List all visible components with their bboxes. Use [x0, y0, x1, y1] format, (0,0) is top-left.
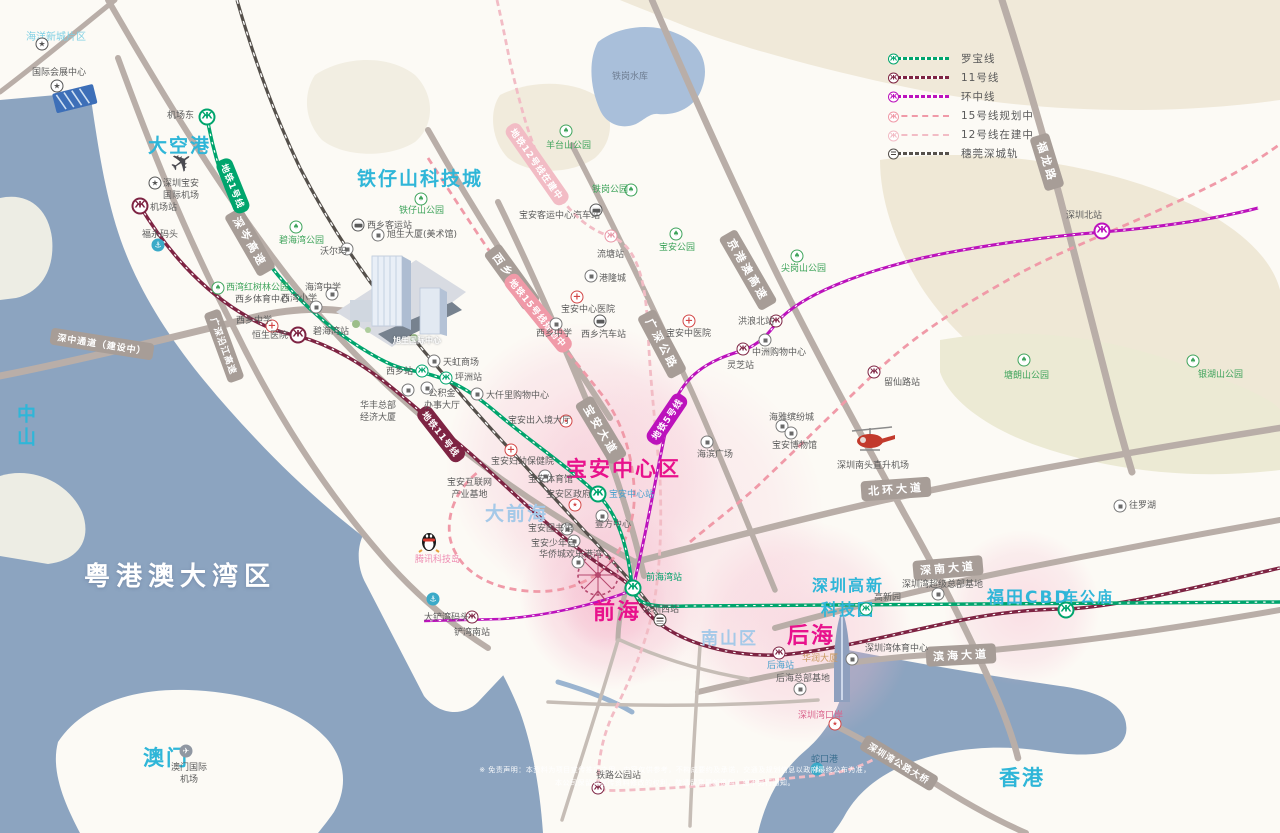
park-bihaiwan-icon: ♠ — [290, 221, 303, 234]
map-label: 旭生国际中心 — [393, 336, 441, 346]
map-label: 宝安中心站 — [609, 490, 654, 502]
map-label: 碧海湾站 — [313, 327, 349, 339]
station-shenzhenbei-icon: Ж — [1094, 223, 1111, 240]
region-label: 南山区 — [701, 624, 758, 649]
map-label: 宝安少年宫 — [531, 539, 576, 551]
legend-item: Ж11号线 — [891, 72, 1034, 83]
map-label: 银湖山公园 — [1198, 370, 1243, 382]
map-label: 羊台山公园 — [546, 141, 591, 153]
map-label: 留仙路站 — [884, 378, 920, 390]
poi-ganglongcheng-icon — [585, 270, 598, 283]
poi-wangluohu-icon — [1114, 500, 1127, 513]
map-label: 碧海湾公园 — [279, 236, 324, 248]
map-label: 深圳湾超级总部基地 — [902, 580, 983, 592]
map-label: 往罗湖 — [1129, 501, 1156, 513]
park-baoan-icon: ♠ — [670, 228, 683, 241]
region-label: 大前海 — [485, 499, 548, 526]
map-label: 塘朗山公园 — [1004, 371, 1049, 383]
map-label: 西湾小学 — [281, 294, 317, 306]
poi-huizhanzhongxin-icon: ★ — [51, 80, 64, 93]
region-label: 铁仔山科技城 — [357, 164, 483, 191]
poi-zhongzhou-icon — [759, 334, 772, 347]
station-jichangdong-icon: Ж — [199, 109, 216, 126]
legend-item-label: 12号线在建中 — [961, 127, 1034, 142]
map-label: 大仟里购物中心 — [486, 391, 549, 403]
map-label: 西乡汽车站 — [581, 330, 626, 342]
map-label: 西湾红树林公园 — [226, 283, 289, 295]
legend-item: Ж15号线规划中 — [891, 110, 1034, 121]
map-label: 铁岗水库 — [612, 72, 648, 84]
disclaimer: ※ 免责声明：本资料为项目宣传推广之用，内容仅供参考，不构成要约及承诺，交通及规… — [430, 764, 920, 789]
metro-line-label: 地铁5号线 — [644, 391, 690, 448]
park-xiwanhongshulin-icon: ♠ — [212, 282, 225, 295]
map-label: 公积金 办事大厅 — [424, 389, 460, 412]
map-label: 坪洲站 — [455, 373, 482, 385]
legend-line-sample: Ж — [891, 57, 949, 60]
map-label: 海滨广场 — [697, 450, 733, 462]
map-label: 宝安公园 — [659, 243, 695, 255]
bus-xixiangkeyun-icon — [352, 219, 365, 232]
shenzhen-baoan-location-map: ЖЖЖЖЖЖЖЖЖЖЖЖЖЖЖЖЖ✈♠♠♠♠♠♠♠♠♠★★★++++⚓⚓⚓✈★★… — [0, 0, 1280, 833]
park-yinhushan-icon: ♠ — [1187, 355, 1200, 368]
metro-icon: Ж — [888, 72, 899, 83]
legend-item: Ж环中线 — [891, 91, 1034, 102]
map-label: 铁仔山公园 — [399, 206, 444, 218]
legend-line-sample: Ж — [891, 95, 949, 98]
road-label: 福龙路 — [1029, 132, 1064, 191]
map-label: 华丰总部 经济大厦 — [360, 401, 396, 424]
station-gaoxinyuan-icon: Ж — [860, 603, 873, 616]
map-label: 宝安客运中心汽车站 — [519, 211, 600, 223]
station-liutang-icon: Ж — [605, 230, 618, 243]
map-label: 恒生医院 — [252, 331, 288, 343]
station-baoanzhongxin-icon: Ж — [590, 486, 607, 503]
map-label: 澳门国际 机场 — [171, 763, 207, 786]
legend-line-sample: Ж — [891, 76, 949, 79]
road-label: 北环大道 — [860, 477, 931, 502]
legend-line-sample: Ж — [891, 115, 949, 117]
macau-airport-icon: ✈ — [180, 745, 193, 758]
map-label: 机场站 — [150, 203, 177, 215]
road-label: 深中通道（建设中） — [49, 327, 154, 360]
hospital-baoanzhongxin-icon: + — [571, 291, 584, 304]
map-label: 腾讯科技岛 — [415, 555, 460, 567]
hospital-baoanzhongyi-icon: + — [683, 315, 696, 328]
map-label: 国际会展中心 — [32, 68, 86, 80]
map-label: 华润大厦 — [802, 654, 838, 666]
region-label: 中山 — [12, 404, 39, 450]
map-label: 宝安妇幼保健院 — [491, 457, 554, 469]
map-label: 深圳湾体育中心 — [865, 644, 928, 656]
map-label: 铲湾南站 — [454, 628, 490, 640]
disclaimer-line1: ※ 免责声明：本资料为项目宣传推广之用，内容仅供参考，不构成要约及承诺，交通及规… — [430, 764, 920, 777]
map-label: 流塘站 — [597, 250, 624, 262]
metro-icon: Ж — [888, 111, 899, 122]
rail-icon — [888, 148, 899, 159]
map-label: 机场东 — [167, 111, 194, 123]
poi-huarun-icon — [846, 653, 859, 666]
poi-bowuguan-icon — [785, 427, 798, 440]
map-label: 沃尔玛 — [320, 247, 347, 259]
map-label: 港隆城 — [599, 274, 626, 286]
poi-tianhong-icon — [428, 355, 441, 368]
map-label: 深圳宝安 国际机场 — [163, 179, 199, 202]
region-label: 前海 — [593, 594, 641, 626]
port-dachanwan-icon: ⚓ — [427, 593, 440, 606]
map-overlay: ЖЖЖЖЖЖЖЖЖЖЖЖЖЖЖЖЖ✈♠♠♠♠♠♠♠♠♠★★★++++⚓⚓⚓✈★★… — [0, 0, 1280, 833]
region-label: 宝安中心区 — [566, 453, 681, 483]
metro-legend: Ж罗宝线Ж11号线Ж环中线Ж15号线规划中Ж12号线在建中穗莞深城轨 — [891, 53, 1034, 167]
park-tiezishan-icon: ♠ — [415, 193, 428, 206]
road-label: 深岑高速 — [224, 207, 276, 278]
metro-icon: Ж — [888, 130, 899, 141]
disclaimer-line2: 本公司保留对宣传资料修改的权利，敬请留意最新资料，恕不另行通知。 — [430, 777, 920, 790]
metro-line-label: 地铁11号线 — [414, 403, 467, 464]
legend-item-label: 罗宝线 — [961, 51, 996, 66]
map-label: 前海湾站 — [646, 573, 682, 585]
map-label: 宝安中医院 — [666, 329, 711, 341]
map-label: 尖岗山公园 — [781, 264, 826, 276]
station-houhai-icon: Ж — [773, 647, 786, 660]
map-label: 深圳西站 — [643, 605, 679, 617]
map-label: 深圳北站 — [1066, 211, 1102, 223]
park-tanglangshan-icon: ♠ — [1018, 354, 1031, 367]
poi-airport-icon: ★ — [149, 177, 162, 190]
map-label: 高新园 — [874, 593, 901, 605]
map-label: 灵芝站 — [727, 361, 754, 373]
map-label: 海湾中学 — [305, 283, 341, 295]
map-label: 宝安图书馆 — [528, 524, 573, 536]
map-label: 福永码头 — [142, 230, 178, 242]
map-label: 西乡中学 — [536, 329, 572, 341]
station-pingzhou-icon: Ж — [440, 372, 453, 385]
road-label: 滨海大道 — [926, 643, 997, 667]
park-jiangangshan-icon: ♠ — [791, 250, 804, 263]
region-label: 香港 — [999, 762, 1045, 792]
station-chegongmiao-icon: Ж — [1058, 602, 1075, 619]
map-label: 壹方中心 — [595, 520, 631, 532]
poi-haibinguangchang-icon — [701, 436, 714, 449]
legend-item-label: 穗莞深城轨 — [961, 146, 1019, 161]
legend-item-label: 11号线 — [961, 70, 999, 85]
map-label: 西乡中学 — [236, 316, 272, 328]
map-label: 海雅缤纷城 — [769, 413, 814, 425]
map-label: 后海站 — [767, 661, 794, 673]
station-jichang-icon: Ж — [132, 198, 149, 215]
legend-item: Ж12号线在建中 — [891, 129, 1034, 140]
map-label: 宝安体育馆 — [528, 475, 573, 487]
map-label: 宝安出入境大厅 — [508, 416, 571, 428]
station-bihaiwan-icon: Ж — [290, 327, 307, 344]
map-label: 铁岗公园 — [592, 185, 628, 197]
legend-item: Ж罗宝线 — [891, 53, 1034, 64]
station-liuxianlu-icon: Ж — [868, 366, 881, 379]
poi-daqianli-icon — [471, 388, 484, 401]
map-label: 后海总部基地 — [776, 674, 830, 686]
region-label: 粤港澳大湾区 — [84, 556, 276, 593]
poi-huafeng-icon — [402, 384, 415, 397]
legend-item: 穗莞深城轨 — [891, 148, 1034, 159]
map-label: 深圳湾口岸 — [798, 711, 843, 723]
metro-line-label: 地铁1号线 — [214, 156, 251, 215]
park-yangtaishan-icon: ♠ — [560, 125, 573, 138]
road-label: 广深公路 — [637, 308, 688, 379]
map-label: 天虹商场 — [443, 358, 479, 370]
metro-icon: Ж — [888, 53, 899, 64]
map-label: 宝安互联网 产业基地 — [447, 478, 492, 501]
legend-item-label: 环中线 — [961, 89, 996, 104]
poi-haiyangxincheng-icon: ★ — [36, 38, 49, 51]
station-qianhaiwan-icon: Ж — [625, 580, 642, 597]
legend-line-sample — [891, 152, 949, 155]
station-xixiang-icon: Ж — [416, 365, 429, 378]
map-label: 宝安区政府 — [546, 490, 591, 502]
map-label: 洪浪北站 — [738, 317, 774, 329]
station-lingzhi-icon: Ж — [737, 343, 750, 356]
map-label: 深圳南头直升机场 — [837, 461, 909, 473]
map-label: 西乡站 — [386, 367, 413, 379]
metro-icon: Ж — [888, 91, 899, 102]
legend-line-sample: Ж — [891, 134, 949, 136]
road-label: 京港澳高速 — [718, 229, 777, 312]
map-label: 旭生大厦(美术馆) — [387, 230, 457, 242]
map-label: 华侨城欢乐港湾 — [539, 550, 602, 562]
hospital-fuyou-icon: + — [505, 444, 518, 457]
map-label: 中洲购物中心 — [752, 348, 806, 360]
map-label: 大铲湾码头 — [424, 613, 469, 625]
legend-item-label: 15号线规划中 — [961, 108, 1034, 123]
region-label: 后海 — [787, 618, 835, 650]
road-label: 深南大道 — [912, 555, 983, 581]
map-label: 宝安博物馆 — [772, 441, 817, 453]
map-label: 宝安中心医院 — [561, 305, 615, 317]
